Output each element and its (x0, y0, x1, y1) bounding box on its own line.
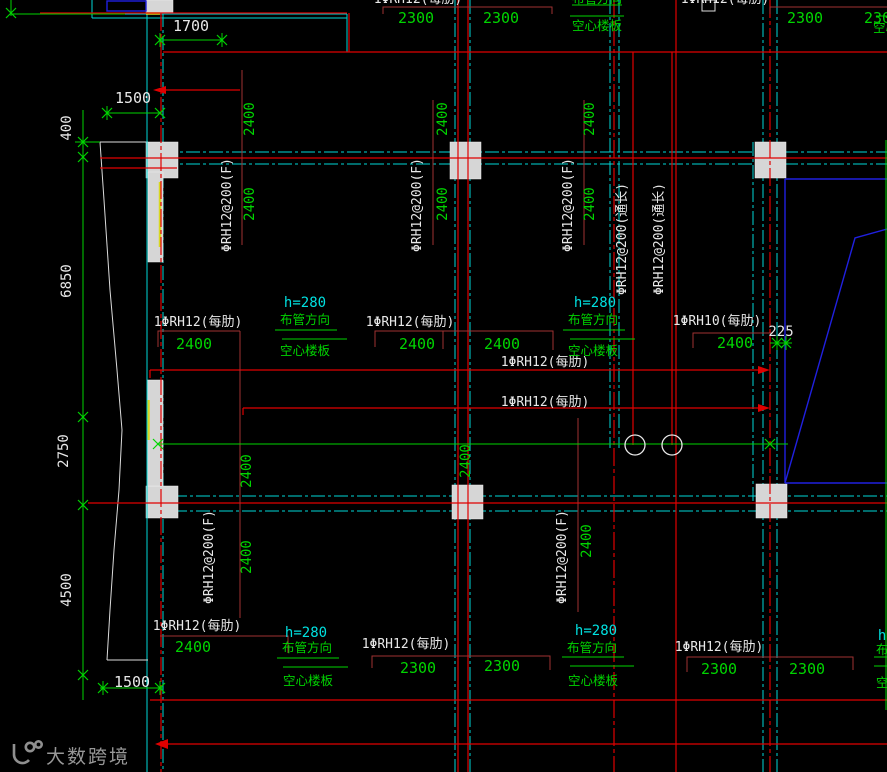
column (146, 0, 173, 13)
dim-2400-v: 2400 (582, 187, 598, 221)
rib12-label: 1ΦRH12(每肋) (153, 618, 242, 634)
rib-f-label-v: ΦRH12@200(F) (555, 510, 570, 604)
dim-2400-v: 2400 (242, 102, 258, 136)
height-note: h=280 (285, 625, 327, 641)
hollow-slab-note-clipped: 空心楼板 (876, 675, 887, 690)
hollow-slab-note: 空心楼板 (568, 343, 619, 358)
rib-f-label-v: ΦRH12@200(F) (220, 158, 235, 252)
dim-2400-v: 2400 (458, 444, 474, 478)
dim-2300: 2300 (484, 657, 520, 675)
rib-through-label-v: ΦRH12@200(通长) (652, 183, 667, 295)
dim-2400: 2400 (175, 638, 211, 656)
pipe-direction-note: 布管方向 (282, 640, 332, 655)
height-note: h=280 (284, 295, 326, 311)
dim-1500-bottom: 1500 (114, 673, 150, 691)
dim-2400: 2400 (717, 334, 753, 352)
height-note: h=280 (575, 623, 617, 639)
dim-2400-v: 2400 (582, 102, 598, 136)
dim-1500-top: 1500 (115, 89, 151, 107)
dim-2400-v: 2400 (242, 187, 258, 221)
dim-6850: 6850 (59, 264, 75, 298)
pipe-direction-note-clipped: 布管方向 (572, 0, 622, 6)
dim-1700: 1700 (173, 17, 209, 35)
dim-2400-v: 2400 (435, 102, 451, 136)
hollow-slab-note: 空心楼板 (572, 18, 623, 33)
hollow-slab-note: 空心楼板 (280, 343, 331, 358)
rib12-label: 1ΦRH12(每肋) (501, 394, 590, 410)
cad-canvas[interactable]: 1700 1500 1500 400 6850 2750 4500 225 23… (0, 0, 887, 772)
dim-2300: 2300 (398, 9, 434, 27)
watermark-text: 大数跨境 (46, 746, 130, 768)
rib12-label: 1ΦRH12(每肋) (362, 636, 451, 652)
dim-2400: 2400 (484, 335, 520, 353)
pipe-direction-note-clipped: 布管方向 (876, 642, 887, 657)
rib12-label: 1ΦRH12(每肋) (366, 314, 455, 330)
rib-through-label-v: ΦRH12@200(通长) (615, 183, 630, 295)
dim-2300: 2300 (701, 660, 737, 678)
dim-2400: 2400 (399, 335, 435, 353)
dim-225: 225 (768, 324, 793, 340)
pipe-direction-note: 布管方向 (568, 312, 618, 327)
rib12-label: 1ΦRH12(每肋) (154, 314, 243, 330)
rib-f-label-v: ΦRH12@200(F) (561, 158, 576, 252)
rib12-label-clipped: 1ΦRH12(每肋) (681, 0, 770, 7)
rib-f-label-v: ΦRH12@200(F) (410, 158, 425, 252)
rib12-label: 1ΦRH12(每肋) (675, 639, 764, 655)
column (450, 142, 481, 179)
cad-drawing-viewport[interactable]: 1700 1500 1500 400 6850 2750 4500 225 23… (0, 0, 887, 772)
dim-2400-v: 2400 (435, 187, 451, 221)
rib-f-label-v: ΦRH12@200(F) (202, 510, 217, 604)
dim-2400: 2400 (176, 335, 212, 353)
hollow-slab-note: 空心楼板 (568, 673, 619, 688)
dim-2750: 2750 (56, 434, 72, 468)
column (756, 484, 787, 518)
rib10-label: 1ΦRH10(每肋) (673, 313, 762, 329)
pipe-direction-note: 布管方向 (567, 640, 617, 655)
dim-2400-v: 2400 (239, 540, 255, 574)
rib12-label-clipped: 1ΦRH12(每肋) (374, 0, 463, 7)
pipe-direction-note: 布管方向 (280, 312, 330, 327)
dim-400: 400 (59, 115, 75, 140)
dim-4500: 4500 (59, 573, 75, 607)
dim-2300: 2300 (483, 9, 519, 27)
dim-2300: 2300 (789, 660, 825, 678)
column (146, 486, 178, 518)
hollow-slab-note-clipped: 空心楼板 (873, 20, 887, 35)
height-note: h=280 (574, 295, 616, 311)
hollow-slab-note: 空心楼板 (283, 673, 334, 688)
dim-2300: 2300 (400, 659, 436, 677)
dim-2300: 2300 (787, 9, 823, 27)
dim-2400-v: 2400 (579, 524, 595, 558)
dim-2400-v: 2400 (239, 454, 255, 488)
